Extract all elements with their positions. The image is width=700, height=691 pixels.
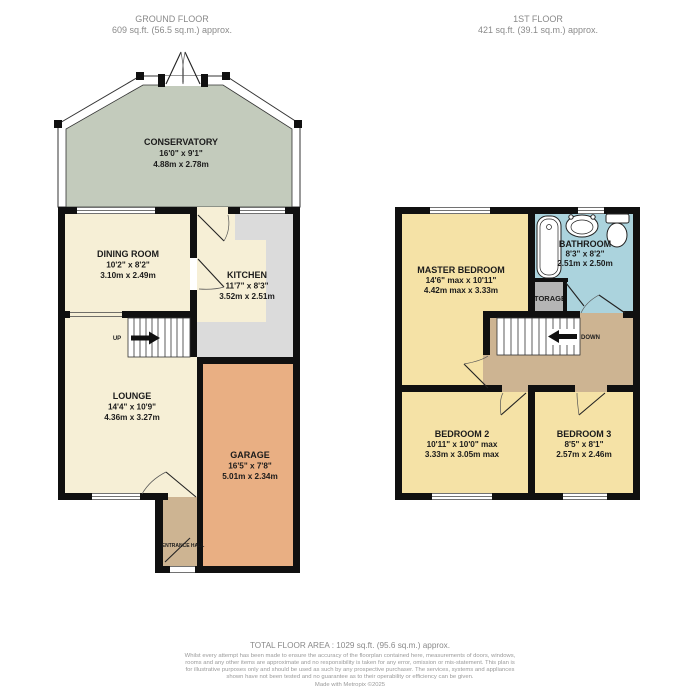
ground-floor-plan: UP CONSERVATORY 16'0" x 9'1" 4.88m x 2.7…: [54, 52, 302, 573]
conservatory-metric: 4.88m x 2.78m: [153, 160, 209, 169]
floorplan-page: GROUND FLOOR 609 sq.ft. (56.5 sq.m.) app…: [0, 0, 700, 691]
front-door: [170, 566, 195, 573]
kitchen-metric: 3.52m x 2.51m: [219, 292, 275, 301]
conservatory-imperial: 16'0" x 9'1": [159, 149, 203, 158]
conservatory-name: CONSERVATORY: [144, 137, 218, 147]
bedroom3-imperial: 8'5" x 8'1": [565, 440, 604, 449]
bedroom2-name: BEDROOM 2: [435, 429, 490, 439]
room-lounge-floor2: [65, 357, 197, 497]
floorplan-svg: UP CONSERVATORY 16'0" x 9'1" 4.88m x 2.7…: [0, 0, 700, 691]
bathroom-name: BATHROOM: [559, 239, 611, 249]
garage-imperial: 16'5" x 7'8": [228, 462, 272, 471]
bathtub-icon: [537, 216, 561, 278]
entrance-hall-name: ENTRANCE HALL: [162, 543, 205, 549]
bathroom-imperial: 8'3" x 8'2": [566, 250, 605, 259]
bedroom3-metric: 2.57m x 2.46m: [556, 450, 612, 459]
stairs-up-label: UP: [113, 336, 121, 342]
bedroom3-name: BEDROOM 3: [557, 429, 612, 439]
sink-icon: [566, 215, 598, 237]
lounge-name: LOUNGE: [113, 391, 152, 401]
footer: TOTAL FLOOR AREA : 1029 sq.ft. (95.6 sq.…: [0, 640, 700, 689]
master-imperial: 14'6" max x 10'11": [426, 276, 497, 285]
lounge-imperial: 14'4" x 10'9": [108, 403, 156, 412]
bedroom2-metric: 3.33m x 3.05m max: [425, 450, 500, 459]
master-name: MASTER BEDROOM: [417, 265, 505, 275]
total-floor-area: TOTAL FLOOR AREA : 1029 sq.ft. (95.6 sq.…: [0, 640, 700, 651]
stairs-down-label: DOWN: [581, 335, 600, 341]
first-floor-plan: STORAGE: [395, 207, 640, 500]
master-metric: 4.42m max x 3.33m: [424, 286, 498, 295]
garage-metric: 5.01m x 2.34m: [222, 472, 278, 481]
dining-metric: 3.10m x 2.49m: [100, 271, 156, 280]
lounge-metric: 4.36m x 3.27m: [104, 413, 160, 422]
dining-imperial: 10'2" x 8'2": [106, 261, 150, 270]
room-entrance-hall-floor: [163, 497, 197, 566]
dining-name: DINING ROOM: [97, 249, 159, 259]
disclaimer-text: Whilst every attempt has been made to en…: [183, 653, 518, 681]
kitchen-name: KITCHEN: [227, 270, 267, 280]
bathroom-metric: 2.51m x 2.50m: [557, 259, 613, 268]
garage-name: GARAGE: [230, 450, 270, 460]
metropix-credit: Made with Metropix ©2025: [0, 681, 700, 689]
kitchen-imperial: 11'7" x 8'3": [225, 282, 268, 291]
bedroom2-imperial: 10'11" x 10'0" max: [427, 440, 498, 449]
